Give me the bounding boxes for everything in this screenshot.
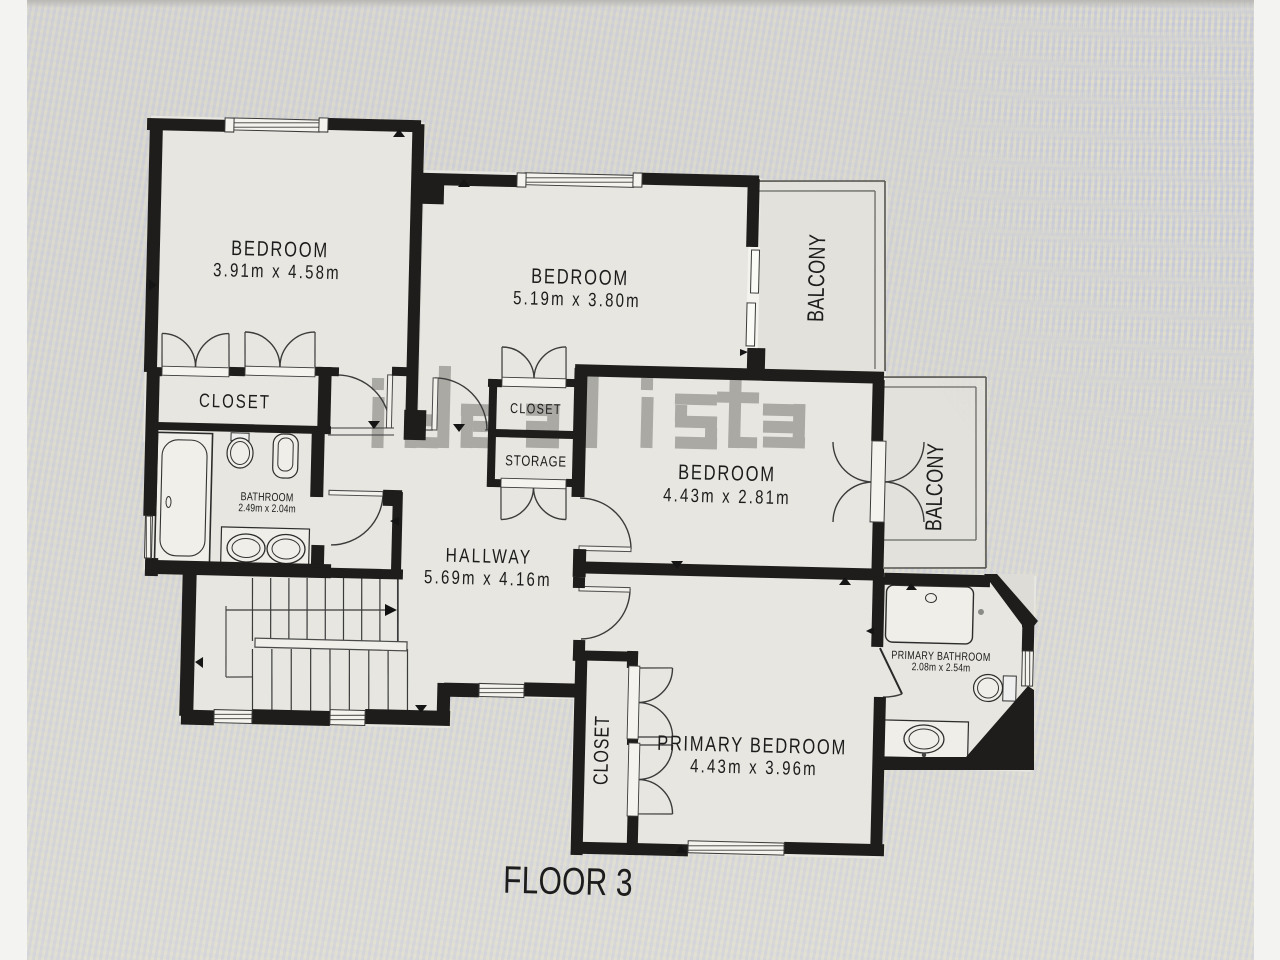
svg-text:3.91m x 4.58m: 3.91m x 4.58m [213, 258, 341, 283]
svg-text:5.19m x 3.80m: 5.19m x 3.80m [513, 286, 641, 311]
svg-text:FLOOR 3: FLOOR 3 [503, 859, 634, 905]
svg-text:5.69m x 4.16m: 5.69m x 4.16m [424, 565, 552, 590]
svg-text:CLOSET: CLOSET [510, 401, 562, 418]
svg-text:BALCONY: BALCONY [803, 234, 831, 323]
svg-text:2.08m x 2.54m: 2.08m x 2.54m [911, 661, 970, 675]
svg-text:CLOSET: CLOSET [199, 389, 272, 413]
svg-text:HALLWAY: HALLWAY [445, 544, 532, 568]
svg-text:STORAGE: STORAGE [505, 452, 567, 470]
svg-text:4.43m x 2.81m: 4.43m x 2.81m [663, 483, 791, 508]
svg-text:2.49m x 2.04m: 2.49m x 2.04m [238, 502, 296, 516]
svg-text:CLOSET: CLOSET [588, 715, 613, 786]
svg-text:4.43m x 3.96m: 4.43m x 3.96m [690, 754, 818, 779]
